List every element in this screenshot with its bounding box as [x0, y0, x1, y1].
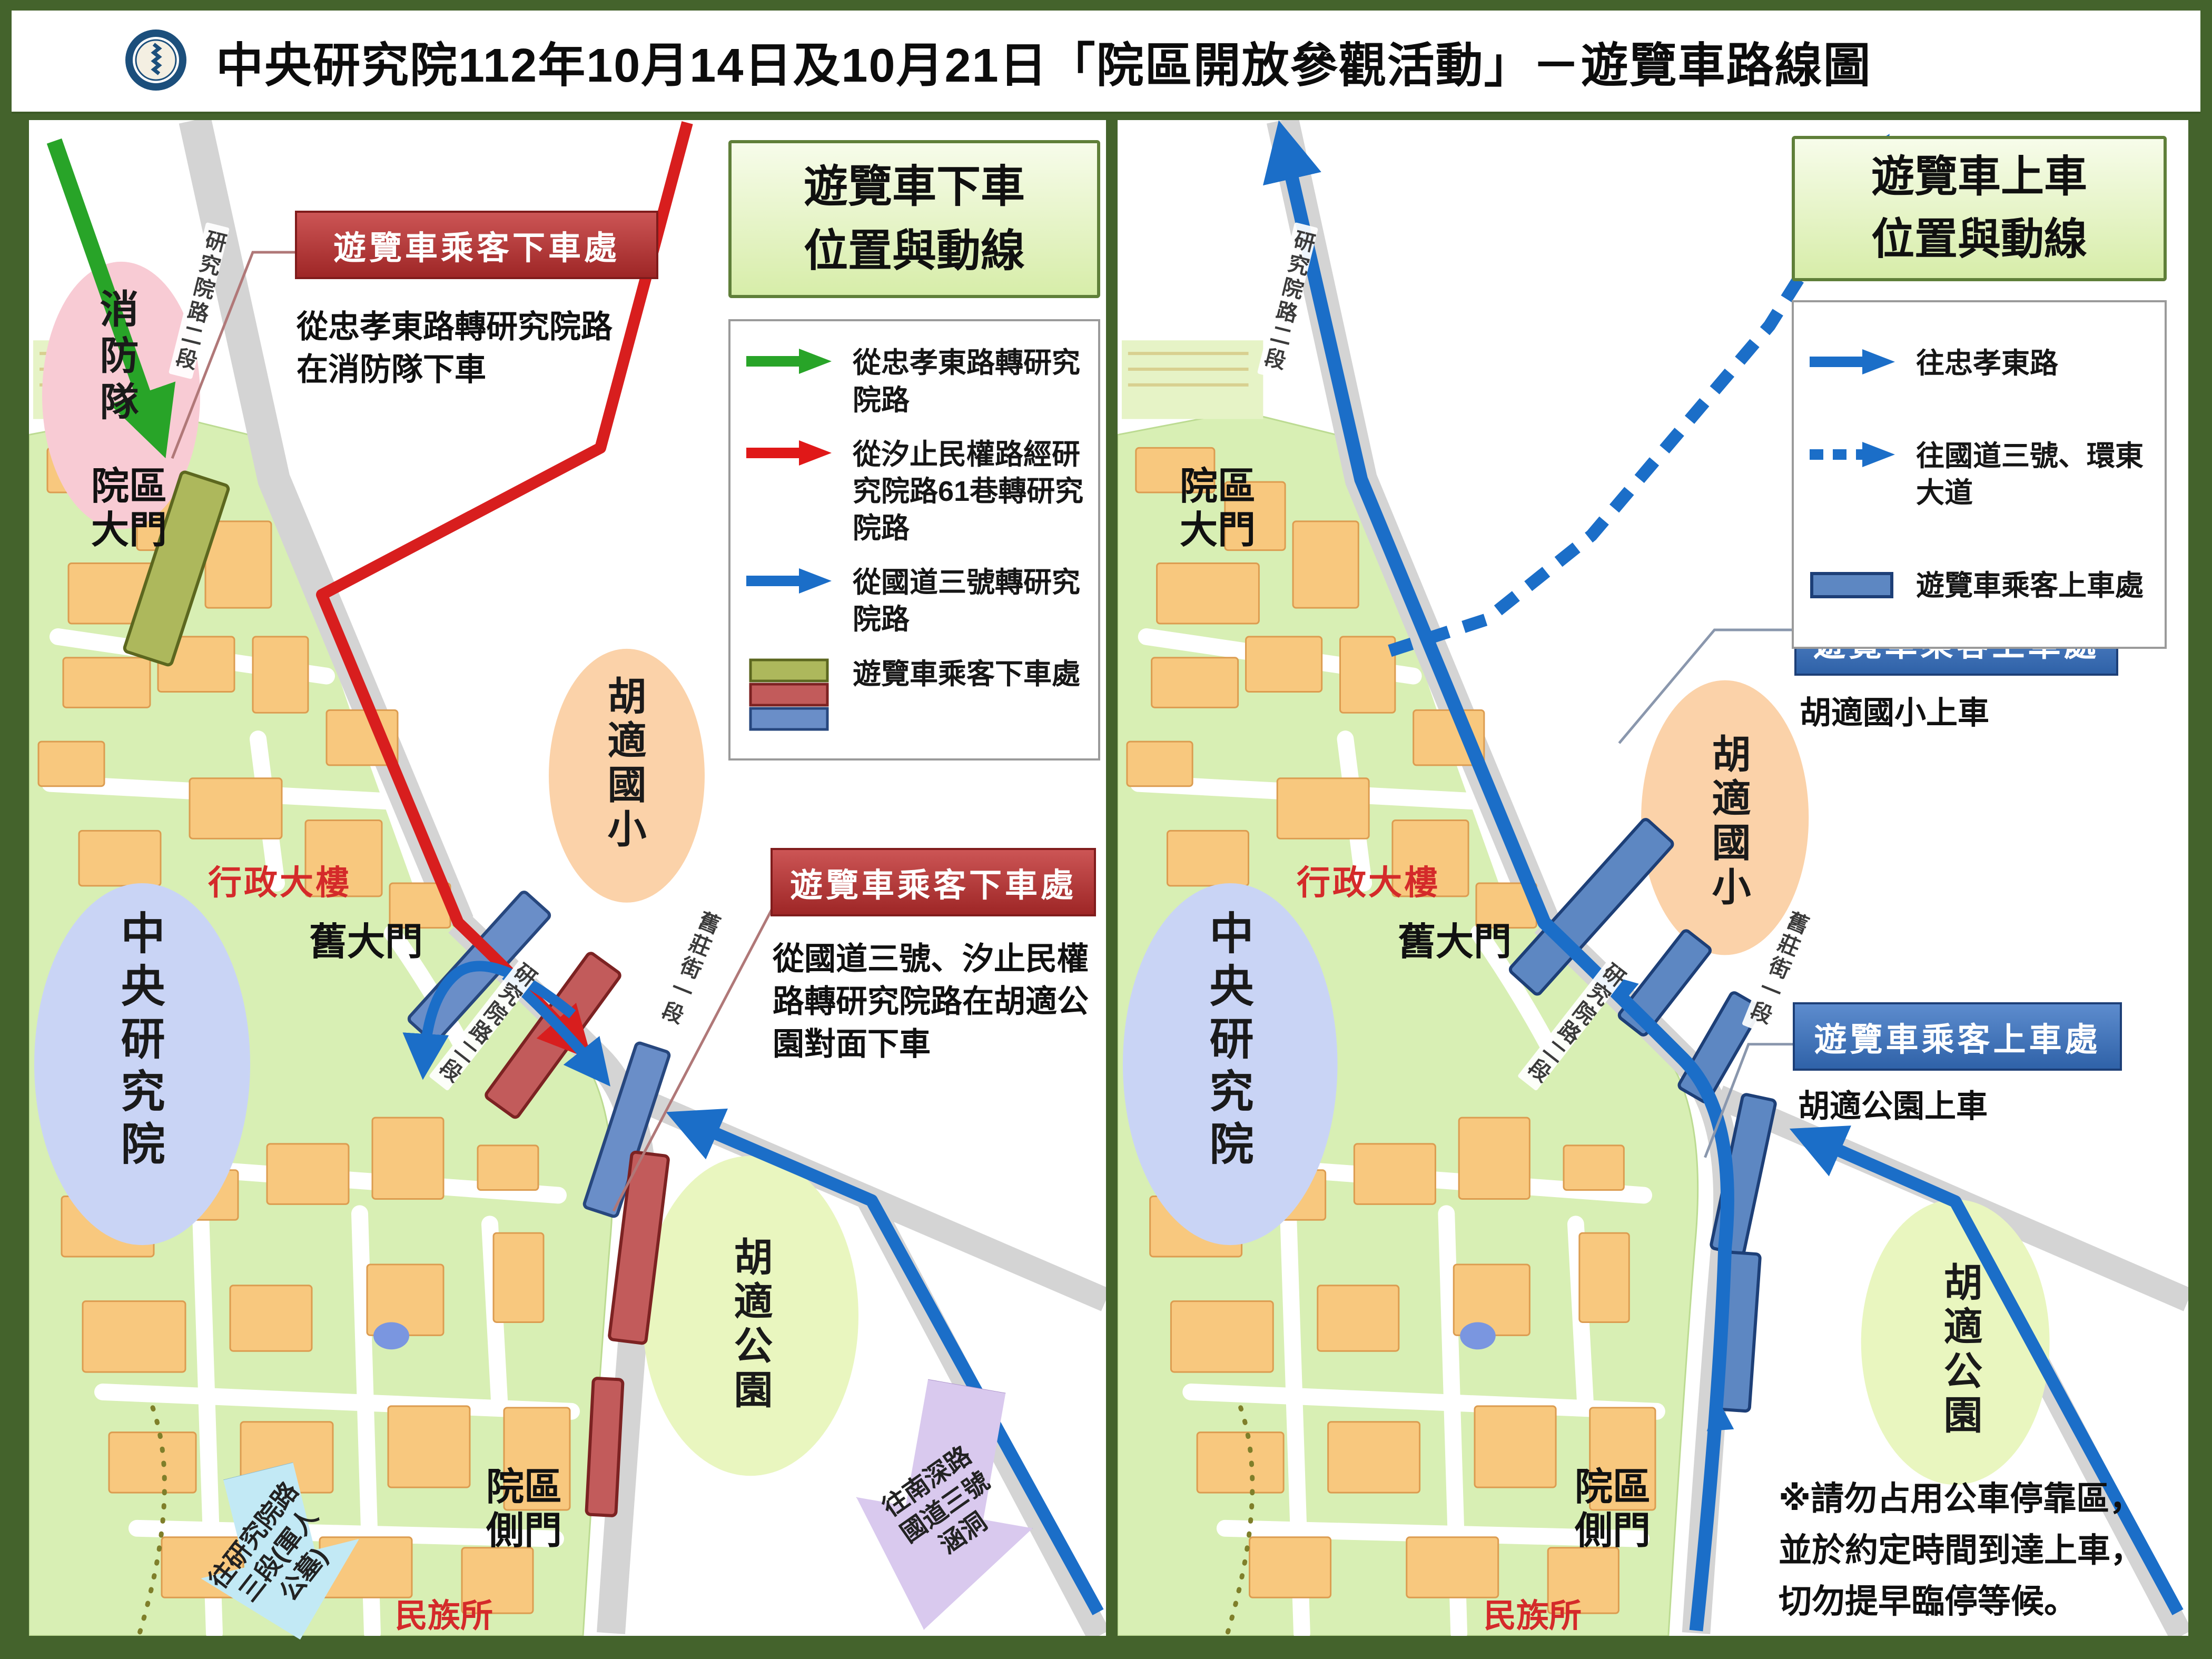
legend-item: 從國道三號轉研究院路 — [744, 564, 1084, 638]
blue-solid-arrow-icon — [1808, 345, 1902, 379]
dropoff-legend-title: 遊覽車下車 位置與動線 — [728, 140, 1100, 298]
ethnology-label: 民族所 — [395, 1597, 493, 1635]
pickup-desc-hu-shih-school: 胡適國小上車 — [1800, 692, 1989, 734]
fire-station-label: 消防隊 — [96, 289, 135, 428]
old-gate-label: 舊大門 — [309, 921, 423, 964]
blue-dashed-arrow-icon — [1808, 438, 1902, 472]
dropoff-bays-icon — [744, 656, 839, 735]
ethnology-label: 民族所 — [1484, 1597, 1582, 1635]
dropoff-map-panel: 消防隊 院區大門 行政大樓 舊大門 中央研究院 胡適國小 胡適公園 院區側門 民… — [29, 120, 1106, 1636]
green-arrow-icon — [744, 344, 839, 379]
academia-sinica-logo-icon — [122, 26, 190, 96]
legend-item: 遊覽車乘客上車處 — [1808, 567, 2151, 604]
dropoff-desc-hu-shih-park: 從國道三號、汐止民權路轉研究院路在胡適公園對面下車 — [773, 937, 1114, 1065]
dropoff-legend: 從忠孝東路轉研究院路 從汐止民權路經研究院路61巷轉研究院路 從國道三號轉研究院… — [728, 319, 1100, 761]
title-bar: 中央研究院112年10月14日及10月21日「院區開放參觀活動」－遊覽車路線圖 — [12, 11, 2200, 114]
poster-title: 中央研究院112年10月14日及10月21日「院區開放參觀活動」－遊覽車路線圖 — [216, 27, 1872, 95]
old-gate-label: 舊大門 — [1398, 921, 1512, 964]
dropoff-desc-fire-station: 從忠孝東路轉研究院路在消防隊下車 — [297, 305, 636, 391]
pickup-note: ※請勿占用公車停靠區， 並於約定時間到達上車， 切勿提早臨停等候。 — [1779, 1474, 2195, 1628]
main-gate-label: 院區大門 — [1180, 465, 1264, 552]
legend-item: 往忠孝東路 — [1808, 345, 2151, 382]
pickup-map-panel: 院區大門 行政大樓 舊大門 中央研究院 胡適國小 胡適公園 院區側門 民族所 研… — [1118, 120, 2188, 1636]
side-gate-label: 院區側門 — [486, 1466, 570, 1553]
dropoff-badge-fire-station: 遊覽車乘客下車處 — [295, 211, 658, 279]
hu-shih-park-label: 胡適公園 — [730, 1237, 769, 1414]
blue-arrow-icon — [744, 564, 839, 598]
main-gate-label: 院區大門 — [91, 465, 175, 552]
pickup-bay-icon — [1808, 567, 1902, 604]
hu-shih-school-label: 胡適國小 — [1709, 734, 1747, 911]
pickup-badge-hu-shih-park: 遊覽車乘客上車處 — [1793, 1002, 2122, 1071]
dropoff-badge-hu-shih-park: 遊覽車乘客下車處 — [771, 848, 1096, 916]
legend-item: 遊覽車乘客下車處 — [744, 656, 1084, 735]
hu-shih-school-label: 胡適國小 — [604, 676, 643, 853]
academia-sinica-label: 中央研究院 — [117, 910, 162, 1173]
admin-building-label: 行政大樓 — [1297, 864, 1440, 903]
legend-item: 往國道三號、環東大道 — [1808, 438, 2151, 511]
hu-shih-park-label: 胡適公園 — [1940, 1262, 1979, 1439]
legend-item: 從汐止民權路經研究院路61巷轉研究院路 — [744, 436, 1084, 547]
pickup-legend: 往忠孝東路 往國道三號、環東大道 遊覽車乘客上車處 — [1792, 300, 2167, 649]
academia-sinica-label: 中央研究院 — [1206, 910, 1250, 1173]
admin-building-label: 行政大樓 — [208, 864, 351, 903]
legend-item: 從忠孝東路轉研究院路 — [744, 344, 1084, 418]
poster: 中央研究院112年10月14日及10月21日「院區開放參觀活動」－遊覽車路線圖 — [0, 0, 2212, 1659]
pickup-legend-title: 遊覽車上車 位置與動線 — [1792, 136, 2167, 281]
side-gate-label: 院區側門 — [1575, 1466, 1659, 1553]
red-arrow-icon — [744, 436, 839, 470]
pickup-desc-hu-shih-park: 胡適公園上車 — [1798, 1085, 1988, 1128]
